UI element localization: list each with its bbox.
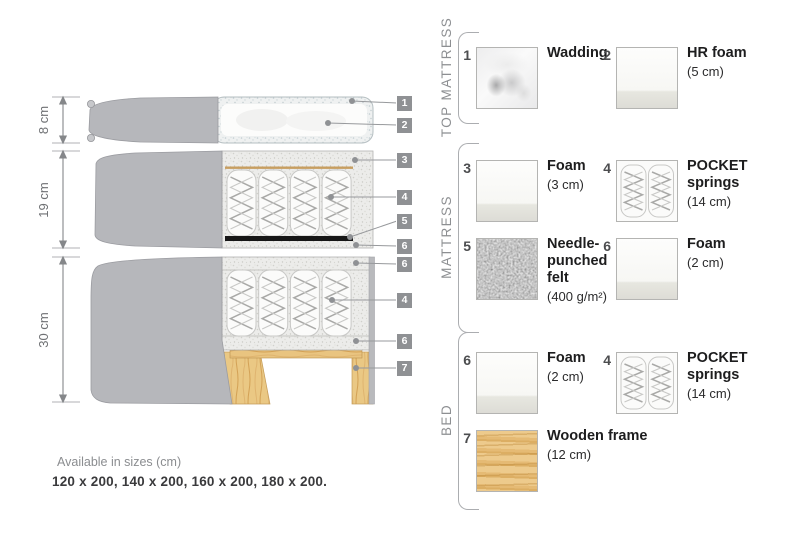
wood-texture-icon (476, 430, 538, 492)
bed-section (91, 257, 375, 404)
foam-texture-icon (476, 160, 538, 222)
dimension-label-8cm: 8 cm (36, 90, 52, 150)
legend-item-foam-2cm: 6 Foam (2 cm) (591, 238, 767, 300)
wood-rail (230, 350, 362, 358)
callout-tag-6c: 6 (397, 334, 412, 349)
foam-texture-icon (616, 47, 678, 109)
legend-item-name: Foam (687, 236, 767, 253)
legend-item-number: 5 (451, 238, 471, 253)
callout-tag-7: 7 (397, 361, 412, 376)
legend-item-name: HR foam (687, 45, 767, 62)
foam-texture-icon (616, 238, 678, 300)
dimension-arrows (52, 97, 80, 402)
top-mattress-cover (89, 97, 218, 143)
foam-texture-icon (476, 352, 538, 414)
callout-tag-4: 4 (397, 190, 412, 205)
pocket-springs-texture-icon (616, 160, 678, 222)
legend-item-size: (12 cm) (547, 447, 667, 463)
legend-item-wooden-frame: 7 Wooden frame (12 cm) (451, 430, 667, 492)
dimension-label-19cm: 19 cm (36, 170, 52, 230)
mattress-handle (87, 134, 94, 141)
bed-cover-edge-right (369, 257, 375, 404)
legend-item-size: (5 cm) (687, 64, 767, 80)
legend-item-number: 3 (451, 160, 471, 175)
legend-item-size: (14 cm) (687, 386, 767, 402)
mattress-handle (87, 100, 94, 107)
bed-cover (91, 257, 232, 404)
callout-tag-6: 6 (397, 239, 412, 254)
legend-item-size: (14 cm) (687, 194, 767, 210)
callout-tag-5: 5 (397, 214, 412, 229)
legend-item-number: 4 (591, 352, 611, 367)
legend-item-name: POCKET springs (687, 158, 767, 192)
pocket-springs-texture-icon (616, 352, 678, 414)
callout-tag-2: 2 (397, 118, 412, 133)
mattress-infographic-page: { "diagram": { "dimensions": [ {"label":… (0, 0, 800, 533)
felt-texture-icon (476, 238, 538, 300)
available-sizes-label: Available in sizes (cm) (57, 455, 181, 469)
legend-item-name: POCKET springs (687, 350, 767, 384)
wadding-texture-icon (476, 47, 538, 109)
legend-item-size: (2 cm) (687, 255, 767, 271)
legend-item-number: 1 (451, 47, 471, 62)
dimension-label-30cm: 30 cm (36, 300, 52, 360)
mattress-cover (95, 151, 222, 248)
available-sizes-values: 120 x 200, 140 x 200, 160 x 200, 180 x 2… (52, 474, 327, 489)
legend-item-number: 6 (451, 352, 471, 367)
legend-item-number: 2 (591, 47, 611, 62)
legend-item-hr-foam: 2 HR foam (5 cm) (591, 47, 767, 109)
callout-tag-3: 3 (397, 153, 412, 168)
legend-item-felt: 5 Needle-punched felt (400 g/m²) (451, 238, 611, 305)
felt-layer (225, 236, 353, 241)
legend-item-name: Wooden frame (547, 428, 667, 445)
legend-item-number: 7 (451, 430, 471, 445)
legend-item-pocket-springs: 4 POCKET springs (14 cm) (591, 160, 767, 222)
legend-item-pocket-springs-bed: 4 POCKET springs (14 cm) (591, 352, 767, 414)
callout-tag-1: 1 (397, 96, 412, 111)
top-mattress-section (87, 97, 373, 143)
legend-item-number: 6 (591, 238, 611, 253)
callout-tag-6b: 6 (397, 257, 412, 272)
callout-tag-4b: 4 (397, 293, 412, 308)
legend-item-number: 4 (591, 160, 611, 175)
